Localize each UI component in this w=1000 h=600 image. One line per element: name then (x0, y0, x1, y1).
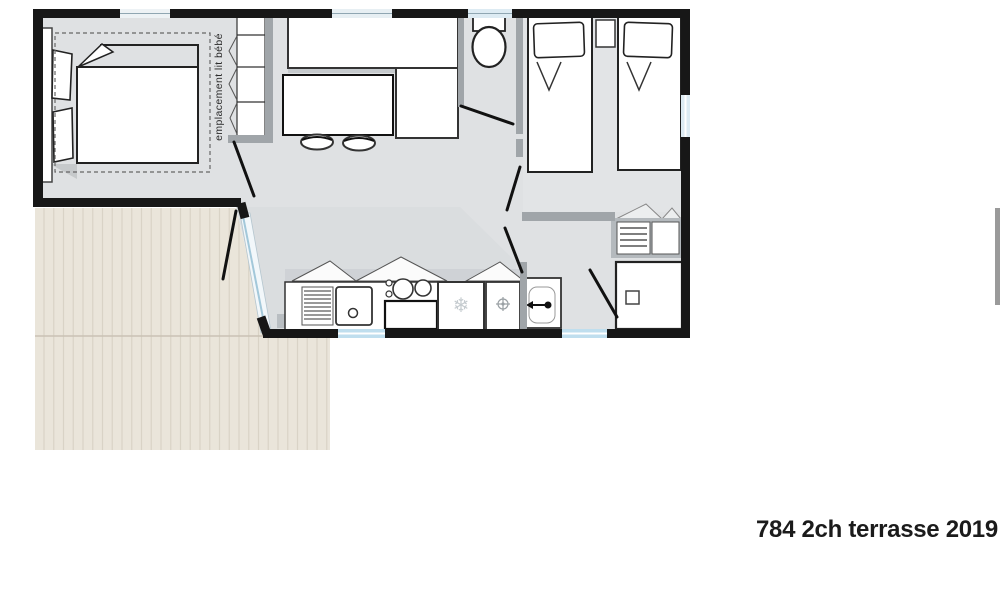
drainboard (302, 287, 333, 325)
baby-cot-area-label: emplacement lit bébé (212, 12, 226, 162)
plan-reference-label: 784 2ch terrasse 2019 (756, 516, 986, 544)
kitchen-sink (336, 287, 372, 325)
dining-table (283, 75, 393, 135)
pillow (53, 108, 73, 162)
right-edge-artifact (995, 208, 1000, 305)
floorplan-drawing: ❄ (0, 0, 1000, 600)
kitchen-counter (277, 279, 438, 330)
nightstand (596, 20, 615, 47)
pillow (623, 22, 672, 58)
toilet (473, 13, 506, 67)
fridge-snowflake-icon: ❄ (453, 295, 470, 317)
bedroom2-bed-right (618, 13, 681, 170)
water-heater (486, 282, 520, 330)
washbasin (524, 278, 561, 328)
shower-tray (616, 262, 682, 329)
stove (385, 279, 437, 329)
bedroom2-bed-left (528, 13, 592, 172)
pillow (533, 22, 584, 58)
heater-valve-icon (501, 302, 504, 305)
floorplan-canvas: ❄ (0, 0, 1000, 600)
shower-drain (626, 291, 639, 304)
fridge: ❄ (438, 282, 484, 330)
